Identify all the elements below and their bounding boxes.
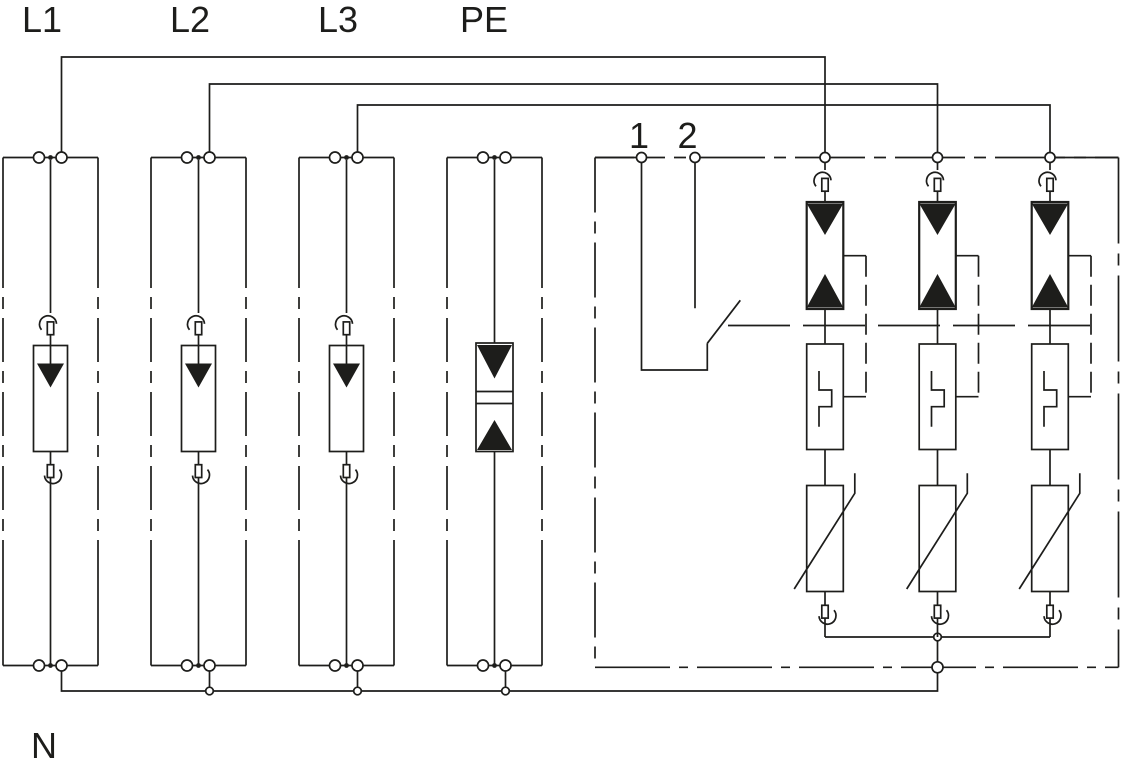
label-l2: L2 — [170, 0, 210, 40]
label-pe: PE — [460, 0, 508, 40]
n-bus-wire — [62, 671, 938, 695]
spark-gap-arrester-icon-l2 — [182, 160, 216, 665]
spark-gap-arrester-icon-l3 — [330, 160, 364, 665]
surge-protection-circuit-diagram: L1 L2 L3 PE 1 2 N — [0, 0, 1121, 762]
rail-l3 — [358, 105, 1051, 153]
label-n: N — [31, 725, 57, 762]
gas-discharge-tube-icon-n-pe — [476, 160, 513, 665]
circuit-diagram-page: L1 L2 L3 PE 1 2 N — [0, 0, 1121, 762]
remote-signalling-contact-icon — [637, 153, 741, 371]
label-contact-terminal-2: 2 — [677, 115, 697, 156]
label-l3: L3 — [318, 0, 358, 40]
spd-branch-1 — [794, 153, 866, 638]
spd-branch-2 — [907, 153, 979, 638]
label-l1: L1 — [22, 0, 62, 40]
spark-gap-arrester-icon-l1 — [34, 160, 68, 665]
phase-feed-rails — [62, 57, 1051, 153]
rail-l2 — [210, 84, 938, 153]
label-contact-terminal-1: 1 — [629, 115, 649, 156]
spd-branch-3 — [1019, 153, 1091, 638]
